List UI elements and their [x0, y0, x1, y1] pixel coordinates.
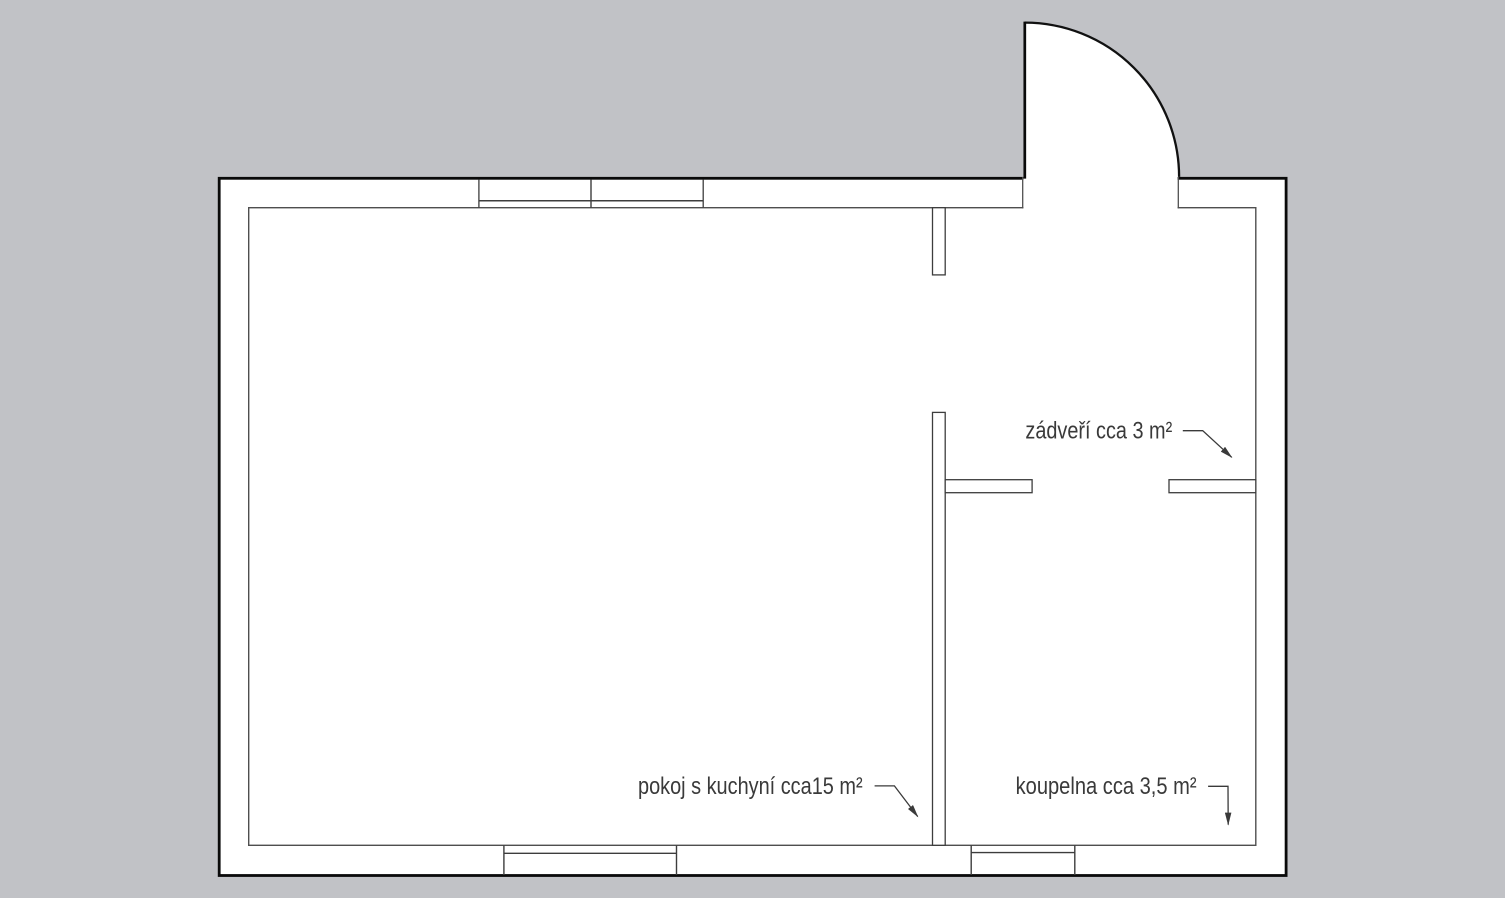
svg-text:zádveří cca 3 m²: zádveří cca 3 m²	[1025, 417, 1172, 444]
svg-text:koupelna cca 3,5 m²: koupelna cca 3,5 m²	[1016, 773, 1197, 800]
svg-text:pokoj s kuchyní cca15 m²: pokoj s kuchyní cca15 m²	[638, 773, 863, 800]
